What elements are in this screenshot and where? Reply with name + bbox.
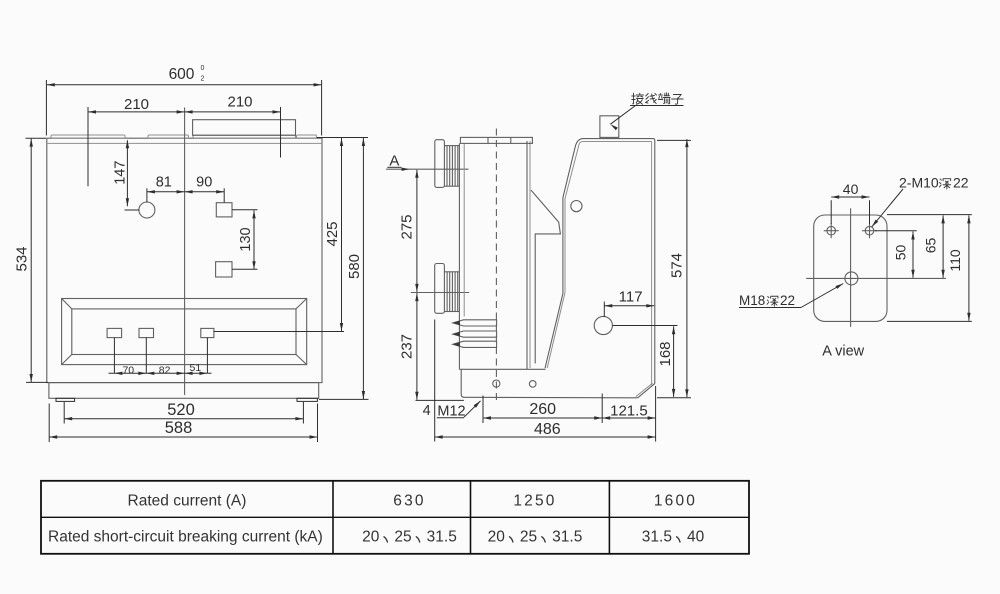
svg-text:51: 51 [190,362,202,374]
svg-text:600: 600 [169,66,195,83]
svg-text:210: 210 [124,96,149,113]
svg-text:1250: 1250 [513,492,556,509]
svg-text:31.5: 31.5 [642,529,672,546]
svg-text:Rated current (A): Rated current (A) [128,492,247,509]
svg-text:A view: A view [822,344,864,360]
svg-text:260: 260 [529,401,556,418]
svg-text:275: 275 [398,214,415,239]
svg-text:0: 0 [201,65,205,72]
svg-text:90: 90 [196,174,212,190]
svg-text:168: 168 [657,341,674,366]
svg-text:486: 486 [534,421,561,438]
svg-text:20: 20 [488,529,506,546]
svg-text:M18: M18 [739,293,765,308]
svg-text:70: 70 [122,365,134,377]
svg-text:147: 147 [113,161,129,185]
svg-text:121.5: 121.5 [610,402,648,419]
svg-text:Rated short-circuit breaking c: Rated short-circuit breaking current (kA… [48,529,323,546]
svg-text:40: 40 [843,181,859,197]
svg-text:2: 2 [201,76,205,83]
svg-text:31.5: 31.5 [427,529,457,546]
svg-text:2-M10: 2-M10 [899,175,939,191]
svg-text:588: 588 [165,419,193,437]
svg-text:110: 110 [947,249,963,272]
svg-text:50: 50 [892,245,908,261]
svg-text:22: 22 [953,175,969,191]
svg-text:40: 40 [687,529,705,546]
svg-text:20: 20 [362,529,380,546]
svg-text:81: 81 [156,174,172,190]
svg-text:82: 82 [159,365,171,377]
svg-text:117: 117 [619,289,643,306]
svg-text:25: 25 [520,529,537,546]
svg-text:237: 237 [398,334,415,359]
svg-text:534: 534 [14,246,31,271]
svg-text:630: 630 [393,492,425,509]
svg-text:25: 25 [394,529,411,546]
svg-text:210: 210 [227,94,252,111]
svg-text:22: 22 [780,293,795,308]
svg-text:31.5: 31.5 [552,529,582,546]
svg-text:1600: 1600 [654,492,697,509]
svg-text:130: 130 [238,227,254,251]
svg-text:520: 520 [167,401,195,419]
svg-text:425: 425 [324,221,341,246]
svg-text:574: 574 [669,253,686,278]
svg-text:4: 4 [423,403,431,419]
svg-text:M12: M12 [437,404,465,420]
svg-text:65: 65 [922,238,938,254]
svg-text:580: 580 [346,254,363,279]
